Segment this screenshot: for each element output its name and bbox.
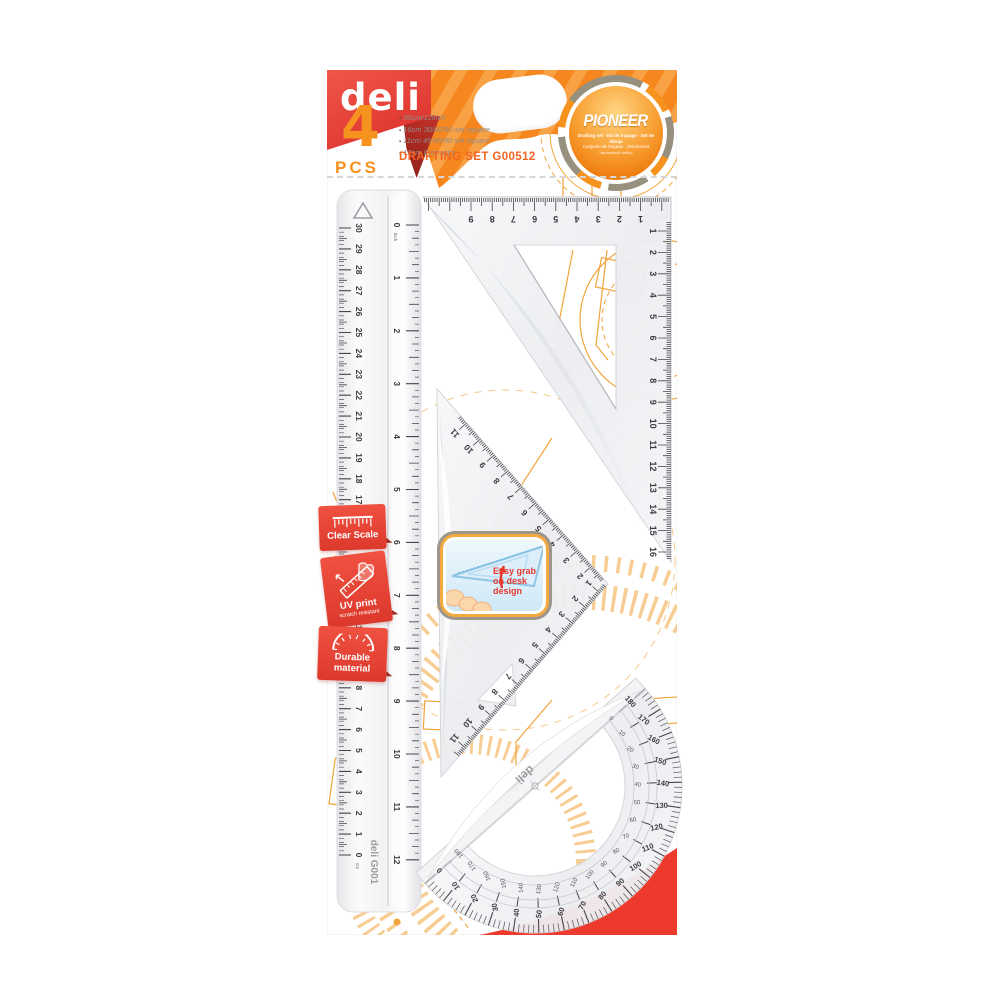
tri1-top-label: 5 bbox=[553, 214, 558, 224]
ruler-cm-label: 7 bbox=[354, 706, 364, 711]
tri1-top-label: 7 bbox=[511, 214, 516, 224]
protractor-outer-label: 50 bbox=[534, 909, 544, 919]
ruler-cm-label: 5 bbox=[354, 748, 364, 753]
ruler-inch-label: 0 bbox=[392, 223, 402, 228]
piece-count: 4 bbox=[341, 100, 380, 156]
ruler-cm-label: 18 bbox=[354, 474, 364, 484]
tri1-side-label: 5 bbox=[648, 314, 658, 319]
ruler-cm-label: 22 bbox=[354, 390, 364, 400]
ruler-cm-label: 25 bbox=[354, 328, 364, 338]
series-subtitle: Drafting set · Kit de traçage · Set de d… bbox=[574, 133, 658, 155]
protractor-outer-label: 30 bbox=[490, 902, 500, 912]
tri1-side-label: 2 bbox=[648, 250, 658, 255]
ruler-inch-unit: inch bbox=[393, 233, 398, 242]
ruler-cm-label: 24 bbox=[354, 349, 364, 359]
arc-scale-icon bbox=[329, 633, 378, 653]
tri1-top-label: 3 bbox=[596, 214, 601, 224]
ruler-inch-label: 9 bbox=[392, 699, 402, 704]
product-packshot: 0123456789101112131415161718192021222324… bbox=[0, 0, 1000, 1000]
tri2-leg-label: 8 bbox=[489, 687, 500, 697]
ruler-cm-label: 8 bbox=[354, 685, 364, 690]
spec-item: ▪16cm 30/60/90 set square bbox=[399, 125, 490, 137]
tri1-top-label: 6 bbox=[532, 214, 537, 224]
tear-line bbox=[327, 176, 677, 178]
hand-ruler-icon bbox=[330, 560, 380, 601]
protractor-outer-label: 140 bbox=[656, 778, 670, 789]
protractor-inner-label: 50 bbox=[633, 800, 640, 806]
ruler-inch-label: 3 bbox=[392, 381, 402, 386]
ruler-inch-label: 2 bbox=[392, 328, 402, 333]
tri1-side-label: 6 bbox=[648, 335, 658, 340]
series-name: PIONEER bbox=[584, 111, 648, 131]
ruler-inch-label: 7 bbox=[392, 593, 402, 598]
ruler-cm-label: 17 bbox=[354, 495, 364, 505]
ruler-inch-label: 11 bbox=[392, 802, 402, 811]
hand-icon bbox=[446, 590, 491, 611]
protractor-inner-label: 140 bbox=[519, 882, 525, 893]
tri1-side-label: 10 bbox=[648, 419, 658, 429]
feature-badge-durable: Durable material bbox=[317, 626, 388, 682]
callout-text: Easy grab on desk design bbox=[493, 566, 543, 596]
ruler-cm-label: 20 bbox=[354, 432, 364, 442]
tri1-side-label: 7 bbox=[648, 357, 658, 362]
product-title: DRAFTING SET G00512 bbox=[399, 151, 536, 163]
tri1-side-label: 13 bbox=[648, 483, 658, 493]
tri2-leg-label: 7 bbox=[503, 671, 514, 681]
tri1-side-label: 9 bbox=[648, 400, 658, 405]
ruler-brand: deli G001 bbox=[368, 840, 379, 885]
ruler-cm-unit: cm bbox=[355, 863, 360, 869]
piece-count-unit: PCS bbox=[335, 158, 379, 178]
tri1-side-label: 15 bbox=[648, 526, 658, 536]
ruler-cm-label: 30 bbox=[354, 223, 364, 233]
ruler-inch-label: 10 bbox=[392, 749, 402, 759]
tri1-side-label: 12 bbox=[648, 461, 658, 471]
ruler-cm-label: 3 bbox=[354, 790, 364, 795]
ruler-inch-label: 12 bbox=[392, 855, 402, 865]
protractor-outer-label: 130 bbox=[655, 801, 668, 810]
ruler-cm-label: 4 bbox=[354, 769, 364, 774]
ruler-cm-label: 21 bbox=[354, 411, 364, 421]
tri1-side-label: 16 bbox=[648, 547, 658, 557]
header: deli 4 PCS ▪30cm/12inch▪16cm 30/60/90 se… bbox=[327, 70, 677, 178]
ruler-cm-label: 23 bbox=[354, 370, 364, 380]
ruler-cm-label: 29 bbox=[354, 244, 364, 254]
spec-item: ▪11cm 45/45/90 set square bbox=[399, 136, 490, 148]
tri1-side-label: 8 bbox=[648, 378, 658, 383]
ruler-inch-label: 8 bbox=[392, 646, 402, 651]
ruler-cm-label: 6 bbox=[354, 727, 364, 732]
ruler-cm-label: 0 bbox=[354, 853, 364, 858]
tri1-top-label: 2 bbox=[617, 214, 622, 224]
ruler-cm-label: 19 bbox=[354, 453, 364, 463]
feature-badge-uv-print: UV print scratch resistant bbox=[320, 550, 393, 628]
spec-item: ▪30cm/12inch bbox=[399, 113, 490, 125]
ruler-inch-label: 1 bbox=[392, 276, 402, 281]
ruler-cm-label: 28 bbox=[354, 265, 364, 275]
pioneer-badge: PIONEER Drafting set · Kit de traçage · … bbox=[558, 75, 674, 191]
tri1-top-label: 4 bbox=[574, 214, 579, 224]
tri1-top-label: 8 bbox=[490, 214, 495, 224]
tri1-side-label: 3 bbox=[648, 271, 658, 276]
tri1-side-label: 11 bbox=[648, 440, 658, 450]
easy-grab-callout: Easy grab on desk design bbox=[437, 531, 552, 620]
tri1-side-label: 4 bbox=[648, 293, 658, 298]
pioneer-ball: PIONEER Drafting set · Kit de traçage · … bbox=[569, 86, 663, 180]
ruler-cm-label: 27 bbox=[354, 286, 364, 296]
feature-badge-clear-scale: Clear Scale bbox=[318, 504, 387, 551]
tri1-top-label: 1 bbox=[638, 214, 643, 224]
ruler-cm-label: 1 bbox=[354, 832, 364, 837]
tri1-side-label: 1 bbox=[648, 228, 658, 233]
ruler-scale-icon bbox=[330, 514, 374, 531]
ruler-inch-label: 6 bbox=[392, 540, 402, 545]
ruler-inch-label: 5 bbox=[392, 487, 402, 492]
ruler-cm-label: 26 bbox=[354, 307, 364, 317]
tri1-top-label: 9 bbox=[468, 214, 473, 224]
protractor-outer-label: 40 bbox=[512, 908, 521, 917]
tri1-side-label: 14 bbox=[648, 504, 658, 514]
ruler-inch-label: 4 bbox=[392, 434, 402, 439]
ruler-cm-label: 2 bbox=[354, 811, 364, 816]
